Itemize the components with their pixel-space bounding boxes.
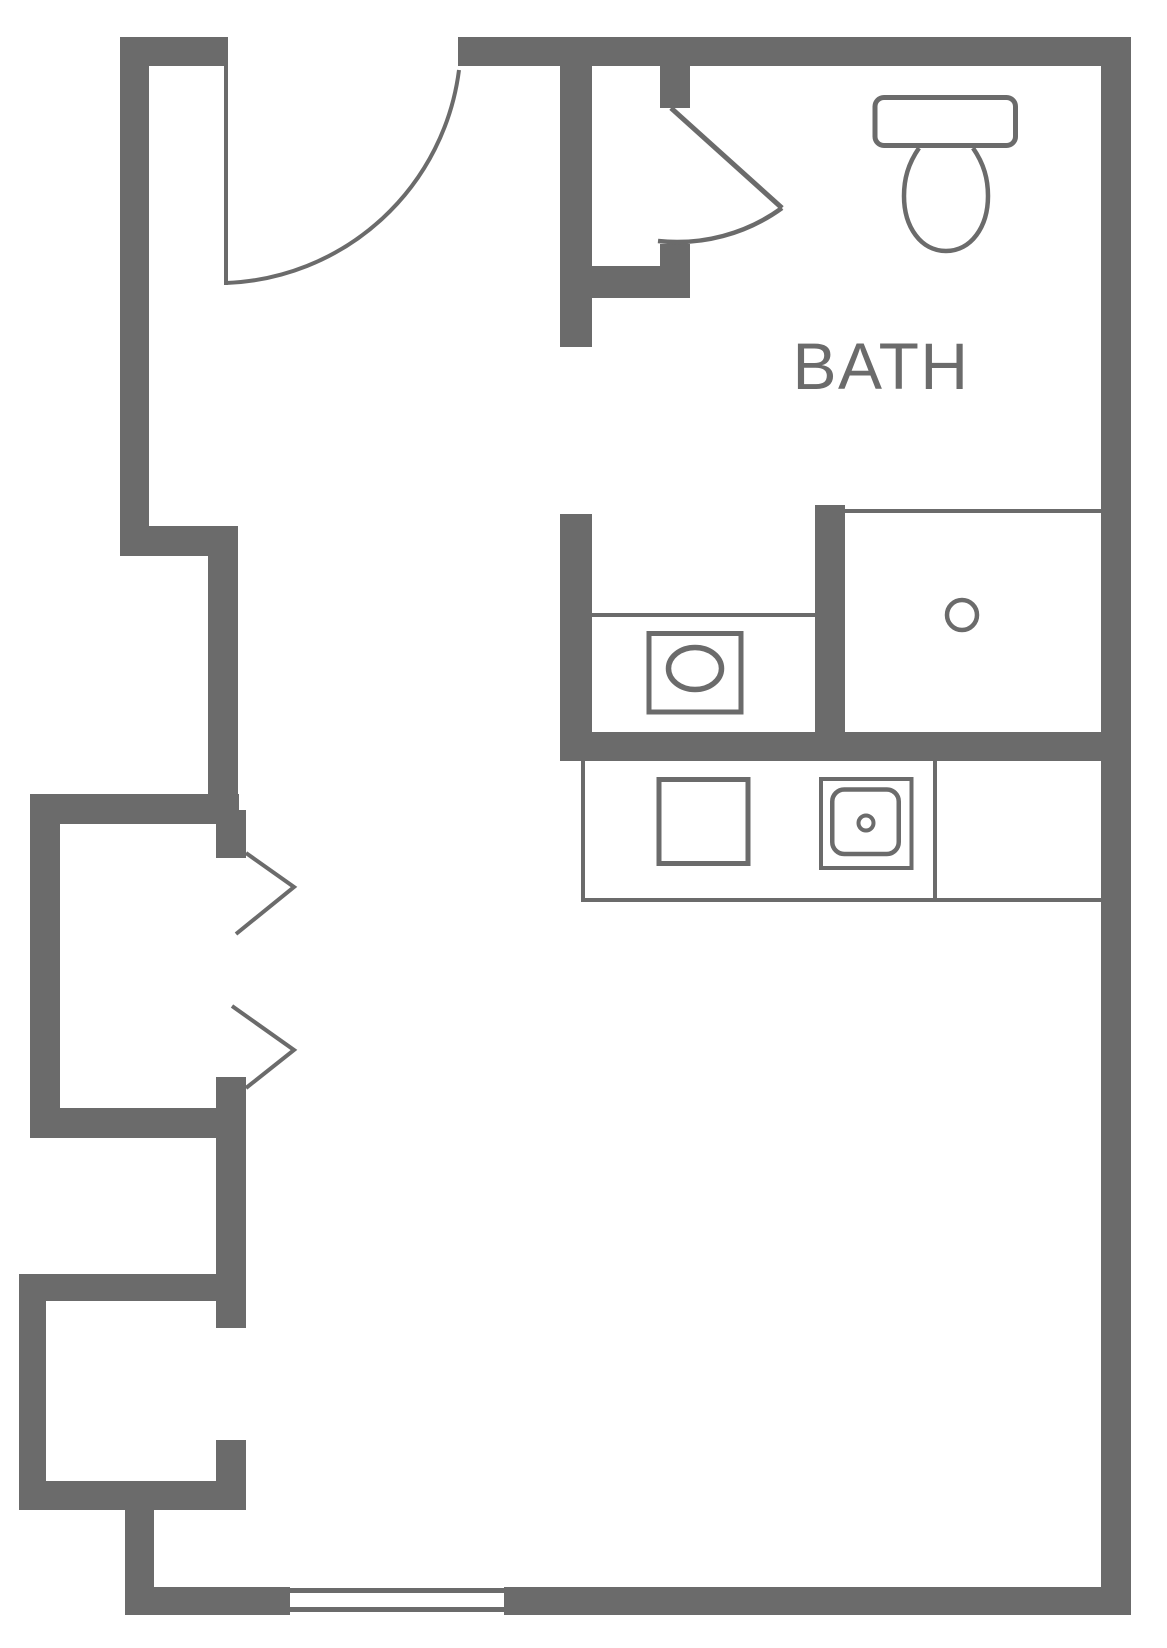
svg-text:BATH: BATH [792,329,969,403]
